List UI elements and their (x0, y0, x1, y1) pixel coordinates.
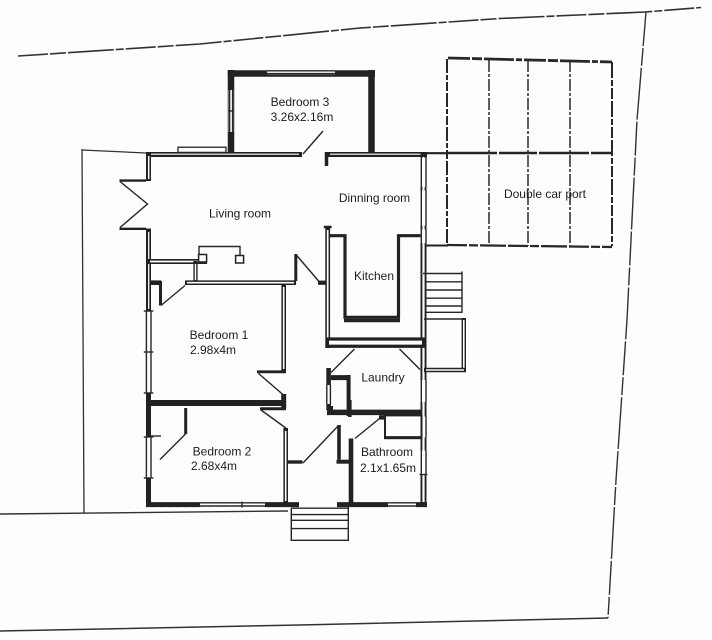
svg-text:2.68x4m: 2.68x4m (191, 459, 237, 473)
svg-text:3.26x2.16m: 3.26x2.16m (271, 110, 334, 124)
svg-text:Laundry: Laundry (361, 371, 404, 385)
svg-text:2.1x1.65m: 2.1x1.65m (360, 461, 416, 475)
svg-text:2.98x4m: 2.98x4m (190, 343, 236, 357)
svg-text:Bedroom 3: Bedroom 3 (271, 95, 330, 109)
svg-text:Bedroom 1: Bedroom 1 (190, 328, 249, 342)
svg-text:Living room: Living room (209, 207, 271, 221)
svg-text:Kitchen: Kitchen (354, 269, 394, 283)
svg-text:Bathroom: Bathroom (361, 445, 413, 459)
svg-text:Dinning room: Dinning room (339, 191, 410, 205)
svg-text:Double car port: Double car port (504, 187, 587, 201)
svg-text:Bedroom 2: Bedroom 2 (193, 445, 252, 459)
